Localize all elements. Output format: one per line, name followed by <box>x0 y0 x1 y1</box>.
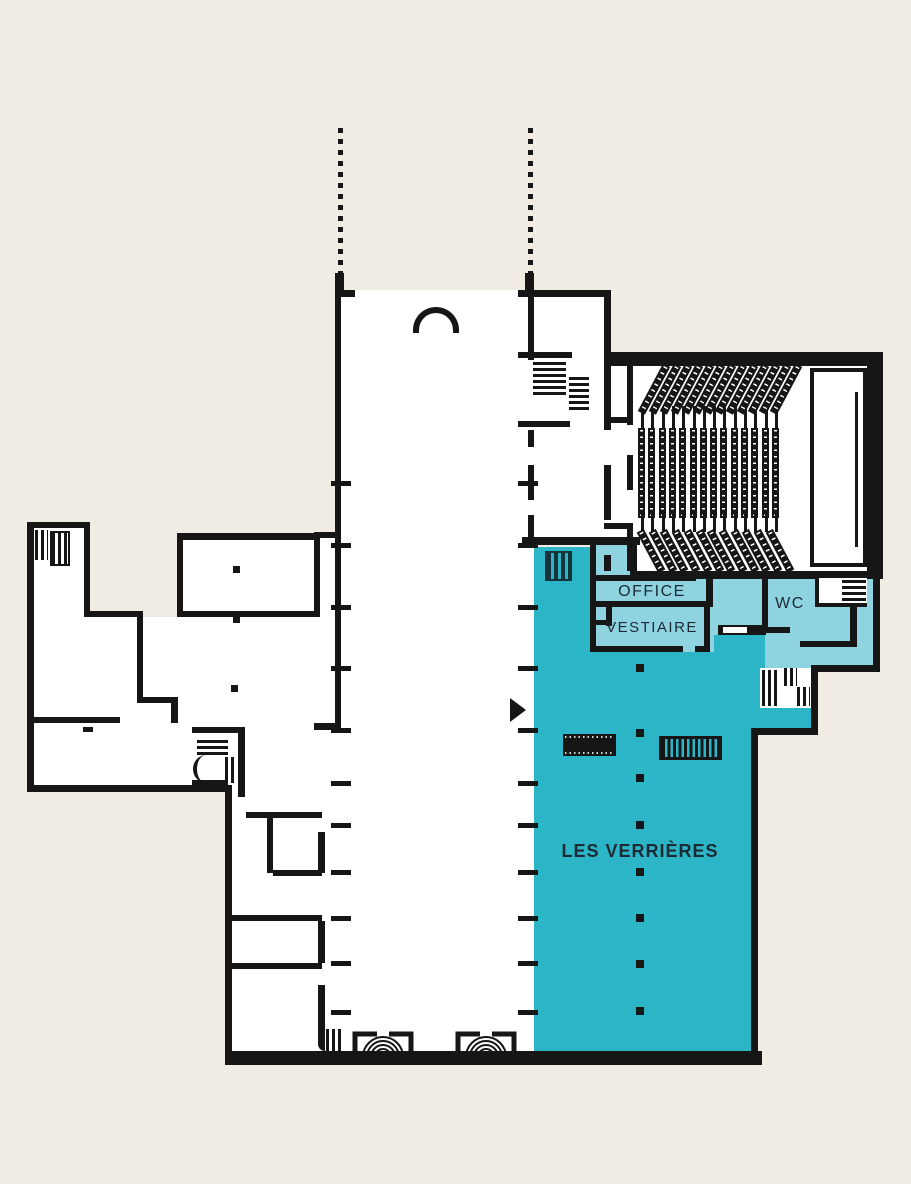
stairs <box>326 1029 342 1051</box>
wall <box>811 665 818 735</box>
wall <box>177 533 320 540</box>
seat-row <box>648 428 655 518</box>
column-tick <box>518 870 538 875</box>
seat-row <box>690 428 697 518</box>
seat-row <box>669 428 676 518</box>
column-tick <box>518 481 538 486</box>
floor-plan: OFFICE VESTIAIRE WC LES VERRIÈRES <box>0 0 911 1184</box>
wall <box>314 533 320 617</box>
wall <box>232 915 322 921</box>
wall <box>627 360 633 425</box>
seat-row <box>659 428 666 518</box>
column-dot <box>636 868 644 876</box>
wall <box>137 611 143 703</box>
wall <box>238 727 245 797</box>
seat-row <box>731 428 738 518</box>
revolving-door-icon <box>352 1031 414 1059</box>
wall <box>84 611 143 617</box>
wall <box>748 627 790 633</box>
column-dot <box>636 960 644 968</box>
column-dot <box>233 566 240 573</box>
wall <box>518 352 572 358</box>
wall <box>604 523 633 529</box>
wall <box>192 780 228 790</box>
seat-row <box>772 428 779 518</box>
stairs <box>35 530 48 560</box>
stage <box>810 368 867 567</box>
column-dot <box>636 729 644 737</box>
wall <box>800 641 857 647</box>
seat-row <box>700 428 707 518</box>
column-tick <box>518 543 538 548</box>
wall <box>604 465 611 520</box>
seat-row <box>638 428 645 518</box>
wall <box>314 532 341 538</box>
wall <box>34 717 120 723</box>
column-tick <box>331 666 351 671</box>
bench <box>659 736 722 760</box>
wall <box>873 571 880 672</box>
zone-services <box>596 544 630 575</box>
column-tick <box>331 823 351 828</box>
stairs <box>762 670 779 706</box>
column-dot <box>636 664 644 672</box>
wall <box>604 352 883 366</box>
wall <box>177 533 183 617</box>
door-swing-icon <box>193 755 219 783</box>
wall <box>84 522 90 617</box>
wall <box>604 555 611 571</box>
column-tick <box>331 1010 351 1015</box>
projection-dotted-line <box>338 128 343 273</box>
column-tick <box>518 916 538 921</box>
revolving-door-icon <box>455 1031 517 1059</box>
column-tick <box>331 481 351 486</box>
seat-row <box>751 428 758 518</box>
column-dot <box>636 914 644 922</box>
hall <box>341 290 534 1058</box>
wall <box>518 290 610 297</box>
seat-row-leg <box>754 514 757 532</box>
room-label-wc: WC <box>764 595 816 613</box>
seat-row <box>679 428 686 518</box>
column-tick <box>331 605 351 610</box>
wall <box>627 455 633 490</box>
projection-dotted-line <box>528 128 533 273</box>
wall <box>83 727 93 732</box>
wall <box>177 611 320 617</box>
wall <box>630 537 637 571</box>
stairs <box>197 740 228 757</box>
wall <box>273 870 322 876</box>
column-dot <box>231 685 238 692</box>
zone-les-verrieres <box>534 652 718 728</box>
wall <box>318 832 325 873</box>
wall <box>225 785 232 1058</box>
room-label-vestiaire: VESTIAIRE <box>596 619 708 636</box>
stairs <box>784 668 797 686</box>
wall <box>815 665 880 672</box>
wall <box>815 603 867 607</box>
left-wing <box>34 617 341 790</box>
column-tick <box>331 870 351 875</box>
wall <box>318 921 325 963</box>
column-tick <box>518 961 538 966</box>
column-tick <box>331 543 351 548</box>
column-dot <box>233 616 240 623</box>
seat-row <box>720 428 727 518</box>
wall <box>751 728 818 735</box>
seat-row <box>741 428 748 518</box>
bench <box>563 734 616 756</box>
wall <box>528 430 534 447</box>
seat-row <box>762 428 769 518</box>
column-tick <box>518 666 538 671</box>
wall <box>335 277 341 730</box>
wall <box>867 352 883 578</box>
stage-curtain-line <box>855 392 858 547</box>
wall <box>232 963 322 969</box>
stairs <box>50 531 70 566</box>
wall <box>318 985 325 1051</box>
wall <box>590 646 683 652</box>
wall <box>596 575 696 581</box>
wall <box>27 522 90 528</box>
column-dot <box>636 1007 644 1015</box>
column-dot <box>636 821 644 829</box>
seat-row-leg <box>693 514 696 532</box>
seat-row-leg <box>765 514 768 532</box>
wall <box>528 297 534 360</box>
stairs <box>533 362 566 398</box>
wall <box>171 697 178 723</box>
column-tick <box>518 823 538 828</box>
seat-row-leg <box>682 514 685 532</box>
column-tick <box>518 1010 538 1015</box>
room-label-office: OFFICE <box>596 583 708 601</box>
wall <box>522 537 640 545</box>
wall <box>604 417 633 423</box>
column-tick <box>518 605 538 610</box>
zone-les-verrieres <box>758 708 811 728</box>
stairs <box>545 551 572 581</box>
wall <box>267 818 273 873</box>
column-tick <box>518 728 538 733</box>
column-tick <box>331 916 351 921</box>
column-tick <box>331 961 351 966</box>
left-wing-room <box>177 533 320 617</box>
wall <box>246 812 322 818</box>
stairs <box>797 687 810 706</box>
wall <box>518 421 570 427</box>
entrance-arrow-icon <box>510 698 526 722</box>
column-tick <box>331 728 351 733</box>
wall <box>27 522 34 792</box>
column-tick <box>331 781 351 786</box>
wall <box>751 728 758 1058</box>
stairs <box>569 377 589 413</box>
seat-row-leg <box>672 514 675 532</box>
zone-les-verrieres <box>534 728 758 1058</box>
column-dot <box>636 774 644 782</box>
seat-row-leg <box>775 514 778 532</box>
column-tick <box>518 781 538 786</box>
room-label-les-verrieres: LES VERRIÈRES <box>528 841 752 862</box>
stairs <box>842 580 866 605</box>
seat-row <box>710 428 717 518</box>
